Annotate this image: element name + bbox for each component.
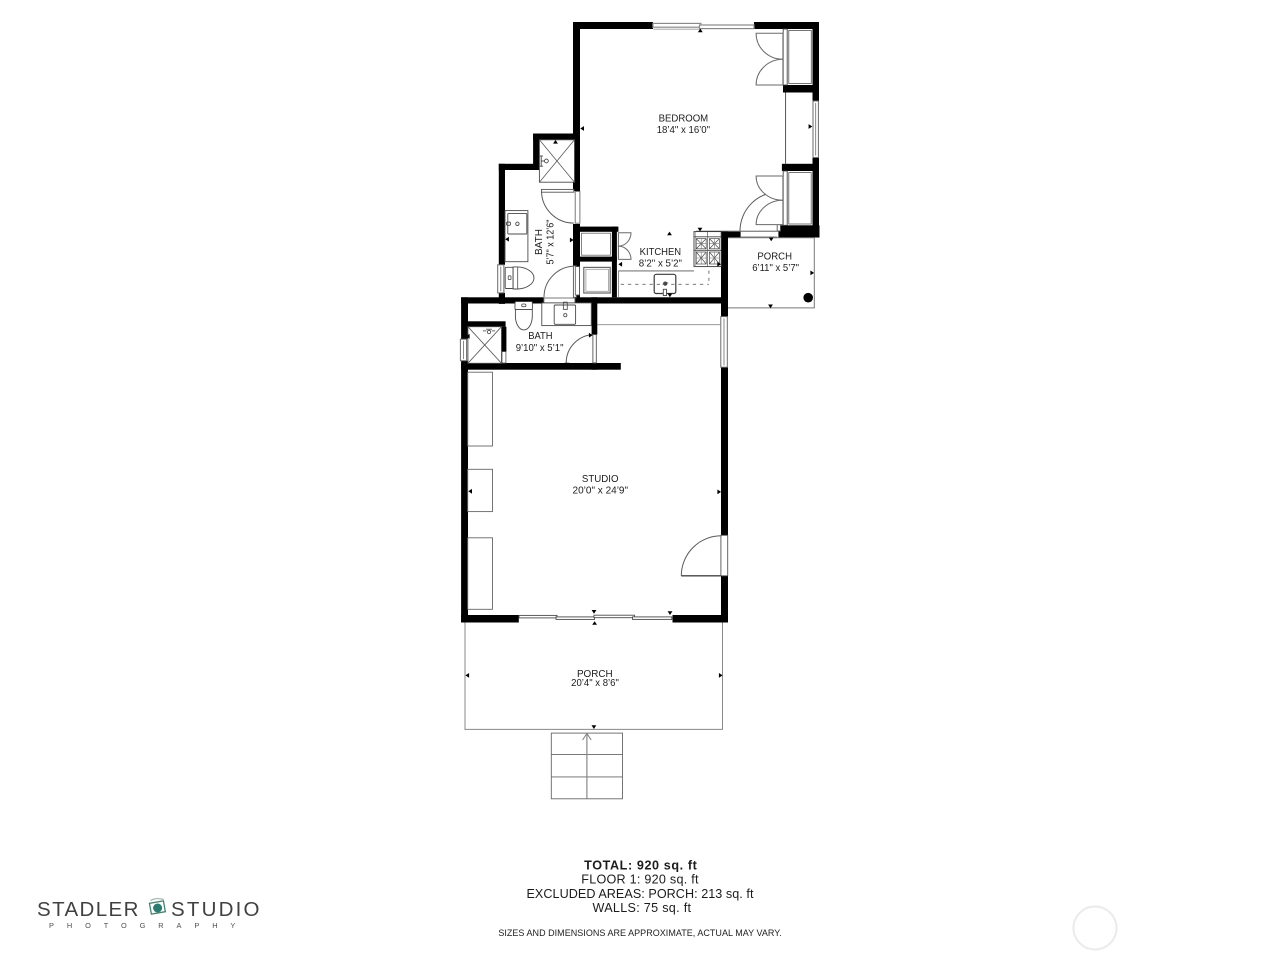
svg-text:6’11" x 5’7": 6’11" x 5’7" (752, 263, 799, 274)
svg-text:20’0" x 24’9": 20’0" x 24’9" (573, 486, 629, 497)
svg-text:PHOTOGRAPHY: PHOTOGRAPHY (49, 921, 248, 930)
svg-text:18’4" x 16’0": 18’4" x 16’0" (657, 125, 711, 136)
svg-text:EXCLUDED AREAS: PORCH: 213 sq.: EXCLUDED AREAS: PORCH: 213 sq. ft (526, 887, 753, 901)
svg-text:STUDIO: STUDIO (582, 474, 619, 485)
svg-text:BEDROOM: BEDROOM (659, 114, 709, 125)
svg-text:WALLS: 75 sq. ft: WALLS: 75 sq. ft (592, 901, 691, 915)
svg-text:BATH: BATH (528, 331, 552, 342)
svg-text:PORCH: PORCH (757, 252, 792, 263)
svg-text:5’7" x 12’6": 5’7" x 12’6" (546, 219, 557, 264)
svg-text:TOTAL: 920 sq. ft: TOTAL: 920 sq. ft (584, 859, 697, 873)
svg-text:STADLER: STADLER (37, 898, 140, 921)
svg-text:BATH: BATH (534, 229, 545, 255)
svg-text:STUDIO: STUDIO (171, 898, 262, 921)
svg-text:20’4" x 8’6": 20’4" x 8’6" (571, 678, 619, 689)
svg-text:8’2" x 5’2": 8’2" x 5’2" (639, 259, 683, 270)
svg-text:KITCHEN: KITCHEN (640, 247, 682, 258)
svg-text:9’10" x 5’1": 9’10" x 5’1" (516, 343, 564, 354)
svg-text:FLOOR 1: 920 sq. ft: FLOOR 1: 920 sq. ft (581, 872, 699, 886)
svg-text:SIZES AND DIMENSIONS ARE APPRO: SIZES AND DIMENSIONS ARE APPROXIMATE, AC… (498, 928, 781, 938)
